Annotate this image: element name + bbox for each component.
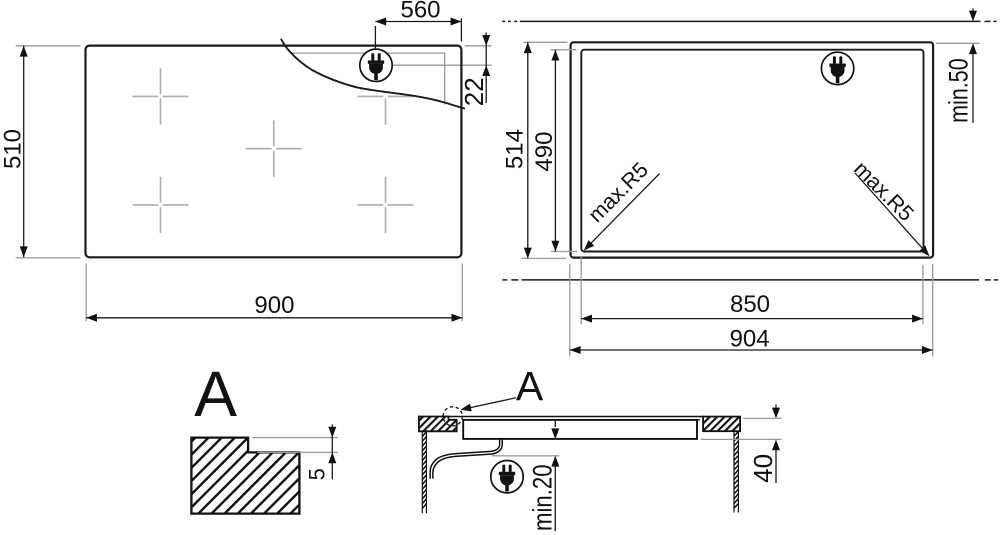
- svg-text:900: 900: [254, 292, 294, 319]
- svg-text:560: 560: [400, 0, 440, 24]
- svg-text:5: 5: [305, 468, 330, 480]
- svg-text:A: A: [194, 358, 237, 430]
- svg-text:904: 904: [730, 326, 770, 353]
- svg-text:850: 850: [730, 291, 770, 318]
- svg-text:490: 490: [531, 132, 558, 172]
- svg-text:A: A: [516, 363, 544, 409]
- svg-text:514: 514: [502, 129, 529, 169]
- svg-text:min.50: min.50: [944, 58, 974, 123]
- svg-text:22: 22: [459, 77, 489, 106]
- svg-text:510: 510: [0, 129, 26, 169]
- svg-text:40: 40: [748, 454, 778, 483]
- svg-text:min.20: min.20: [528, 464, 558, 531]
